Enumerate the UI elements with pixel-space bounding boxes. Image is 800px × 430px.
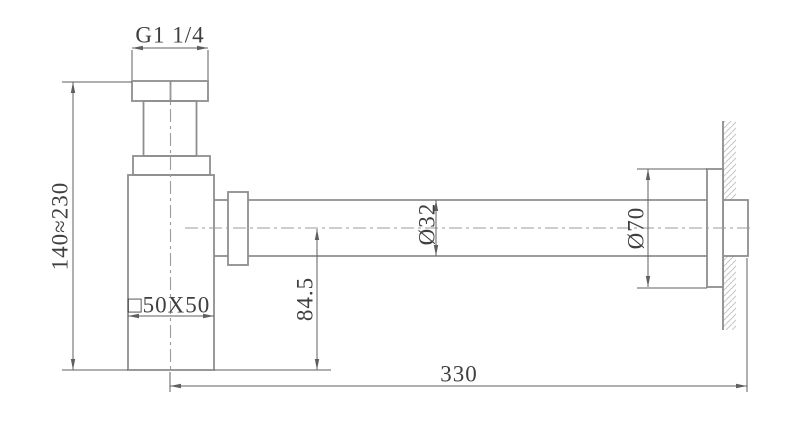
arrowhead-down <box>646 276 650 287</box>
wall-hatch-upper <box>723 121 736 200</box>
body-collar <box>133 156 210 175</box>
arrowhead-down <box>434 245 438 256</box>
arrowhead-up <box>646 169 650 180</box>
label-adjustable-height: 140≈230 <box>49 182 72 271</box>
arrowhead-up <box>71 82 75 93</box>
technical-drawing: G1 1/4 140≈230 □50X50 84.5 Ø32 Ø70 330 <box>0 0 800 430</box>
arrowhead-down <box>315 359 319 370</box>
drawing-canvas <box>0 0 800 430</box>
wall-group <box>707 121 748 330</box>
label-wall-reach: 330 <box>440 363 478 386</box>
centerline-group <box>171 85 754 370</box>
arrowhead-down <box>71 359 75 370</box>
label-thread-size: G1 1/4 <box>135 24 204 47</box>
label-outlet-centre-height: 84.5 <box>294 277 317 321</box>
label-pipe-diameter: Ø32 <box>416 203 439 246</box>
arrowhead-right <box>736 384 747 388</box>
arrowhead-left <box>170 384 181 388</box>
label-flange-diameter: Ø70 <box>625 207 648 250</box>
arrowhead-up <box>315 229 319 240</box>
label-body-section: □50X50 <box>128 294 211 317</box>
wall-hatch-lower <box>723 256 736 330</box>
